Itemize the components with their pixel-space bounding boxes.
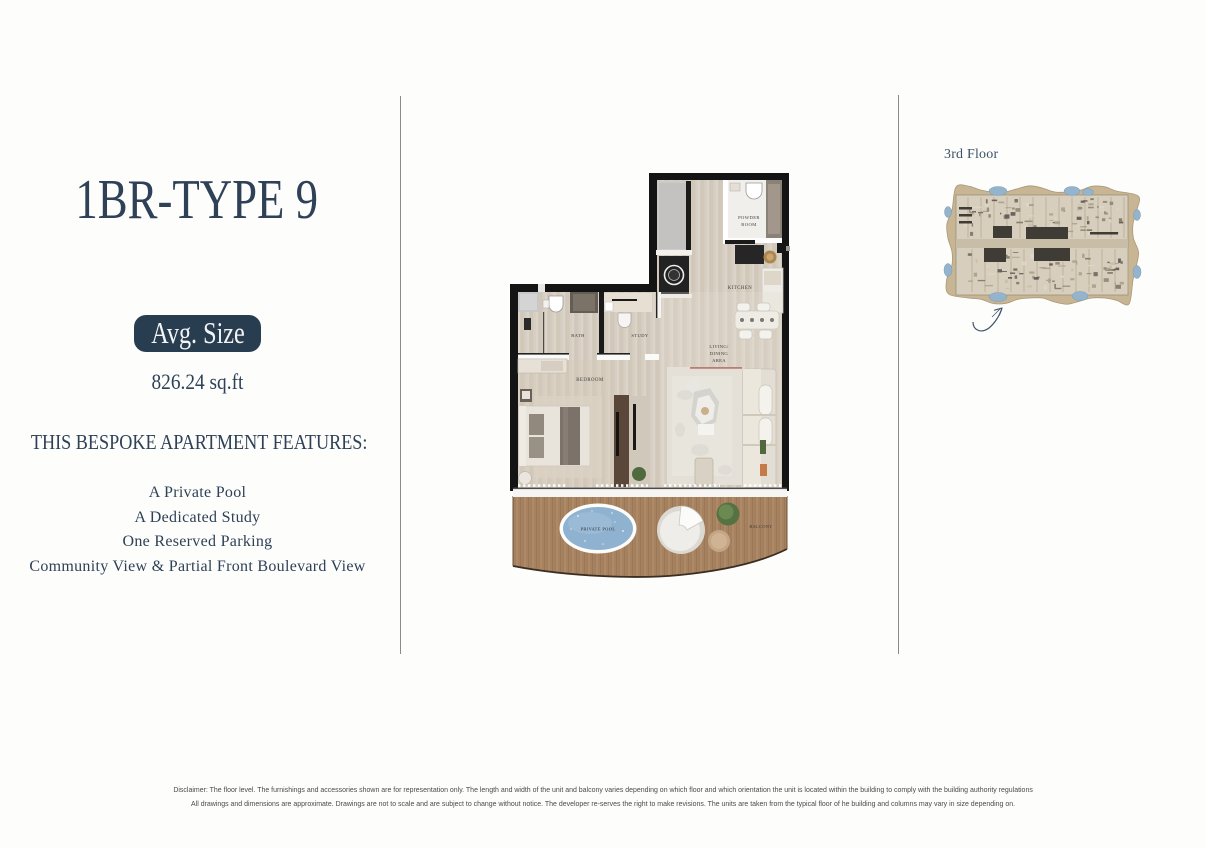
svg-text:POWDER: POWDER [738,215,760,220]
svg-text:KITCHEN: KITCHEN [728,286,753,291]
svg-text:AREA: AREA [712,358,726,363]
svg-text:BEDROOM: BEDROOM [576,378,604,383]
svg-text:LIVING/: LIVING/ [709,344,729,349]
svg-text:BALCONY: BALCONY [749,524,773,529]
svg-text:STUDY: STUDY [631,333,649,338]
svg-text:ROOM: ROOM [741,222,756,227]
svg-text:DINING: DINING [710,351,729,356]
svg-text:PRIVATE POOL: PRIVATE POOL [581,527,616,532]
svg-text:BATH: BATH [571,333,585,338]
